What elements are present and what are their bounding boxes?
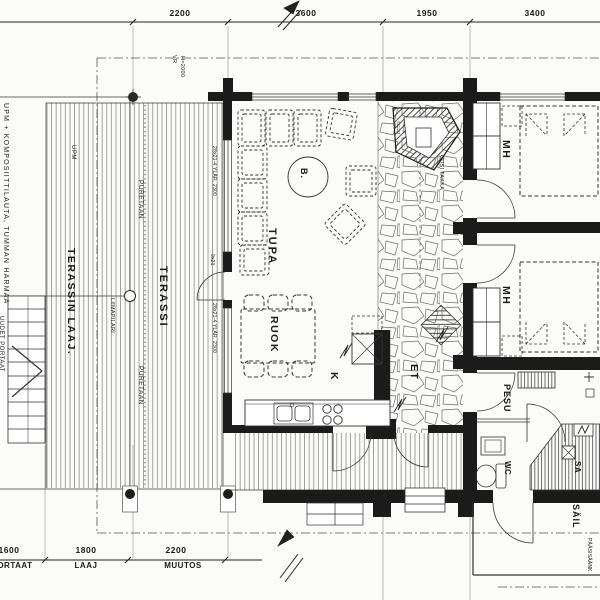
dim-top-4: 3400 xyxy=(511,8,559,18)
armchairs xyxy=(324,108,376,245)
room-label-k: K xyxy=(328,372,340,381)
note-vr: VR xyxy=(171,55,177,63)
mh1-door-swing xyxy=(477,180,515,218)
dim-bottom-2: 1800 xyxy=(61,545,111,555)
note-vr-height: H=2000 xyxy=(179,56,185,77)
mh2-door-swing xyxy=(477,245,515,283)
room-label-sail: SÄIL xyxy=(571,504,581,529)
exterior-stairs xyxy=(8,296,45,443)
note-uudet-portaat: UUDET PORTAAT xyxy=(0,316,4,372)
room-label-wc: WC xyxy=(503,461,512,475)
note-cladding: UPM + KOMPOSIITTILAUTA, TUMMAN HARMAA xyxy=(2,103,9,304)
note-liimapilari: LIIMAPILARI xyxy=(109,298,115,333)
room-label-terassi: TERASSI xyxy=(157,266,169,328)
dim-bottom-label-3: MUUTOS xyxy=(158,561,208,570)
porch-steps xyxy=(307,503,363,525)
note-puretaan-1: PURETAAN xyxy=(137,180,144,219)
room-label-et: ET xyxy=(408,364,420,380)
dim-top-1: 2200 xyxy=(155,8,205,18)
room-label-tupa: TUPA xyxy=(266,228,278,265)
dim-bottom-3: 2200 xyxy=(151,545,201,555)
note-door-spec: 9x21 xyxy=(209,254,215,266)
table-label-b: B. xyxy=(299,168,309,179)
note-window-spec-1: 28x21-4 YLÄR. 2300 xyxy=(211,146,217,196)
section-marker-bottom xyxy=(278,530,303,582)
room-label-mh1: MH xyxy=(500,140,512,159)
entrance-steps xyxy=(405,488,445,512)
room-label-ruok: RUOK xyxy=(268,316,280,353)
bedroom2-furniture xyxy=(473,262,598,356)
note-puretaan-2: PURETAAN xyxy=(137,366,144,405)
dimension-line-top xyxy=(0,19,600,25)
note-window-spec-2: 28x21-4 YLÄR. 2300 xyxy=(211,303,217,353)
room-label-pesu: PESU xyxy=(502,384,512,413)
dim-bottom-label-2: LAAJ xyxy=(61,561,111,570)
note-uusi-takka: UUSI TAKKA xyxy=(438,155,444,201)
kitchen-fixtures xyxy=(245,316,390,426)
note-paasisaank: PÄÄSISÄÄNK. xyxy=(586,538,592,573)
room-label-mh2: MH xyxy=(500,286,512,305)
note-upm: UPM xyxy=(70,145,76,160)
room-label-sa: SA xyxy=(573,461,582,473)
dim-top-3: 1950 xyxy=(402,8,452,18)
floorplan-canvas: 2200 3600 1950 3400 1600 1800 2200 PORTA… xyxy=(0,0,600,600)
dim-bottom-label-1: PORTAAT xyxy=(0,561,40,570)
dim-top-2: 3600 xyxy=(281,8,331,18)
dim-bottom-1: 1600 xyxy=(0,545,36,555)
sail-door-swing xyxy=(493,503,533,543)
bedroom1-furniture xyxy=(473,103,598,196)
sofa xyxy=(238,110,321,275)
room-label-terassin-laaj: TERASSIN LAAJ. xyxy=(65,248,77,355)
sauna-benches xyxy=(530,424,600,490)
